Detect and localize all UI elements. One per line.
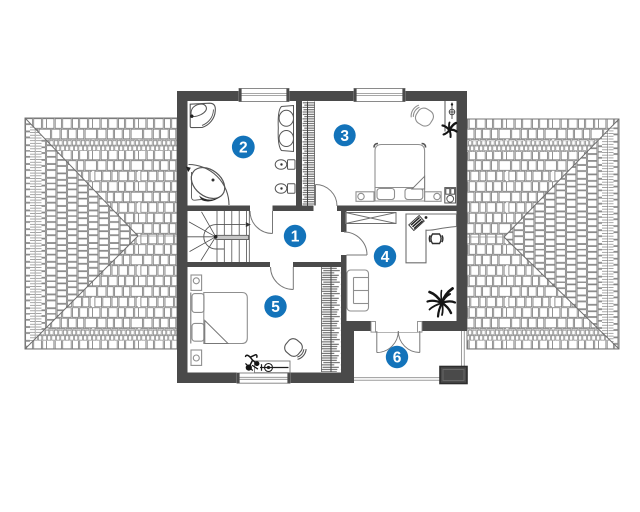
svg-text:6: 6: [393, 350, 402, 367]
svg-text:5: 5: [271, 299, 280, 316]
svg-text:1: 1: [291, 229, 300, 246]
svg-text:4: 4: [381, 249, 390, 266]
svg-text:3: 3: [340, 128, 349, 145]
svg-text:2: 2: [239, 140, 248, 157]
